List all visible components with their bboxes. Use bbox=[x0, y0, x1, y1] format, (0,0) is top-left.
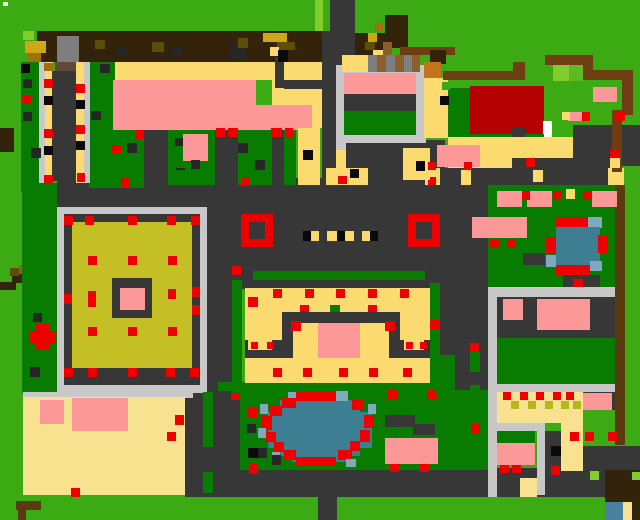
town-map-canvas bbox=[0, 0, 640, 520]
game-map-screen bbox=[0, 0, 640, 520]
